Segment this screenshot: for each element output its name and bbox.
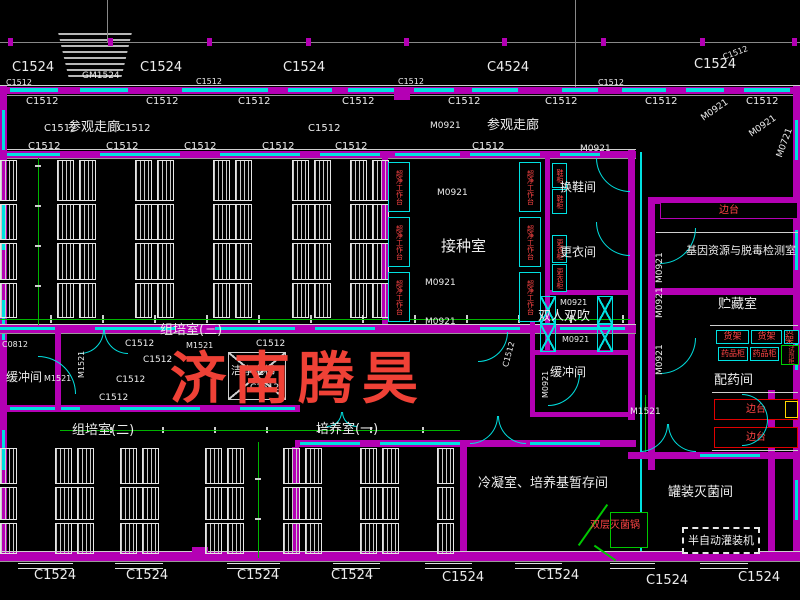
door-arc (596, 222, 630, 256)
air-shower-unit (597, 296, 613, 324)
room-label: 组培室(二) (72, 424, 134, 437)
shelf: 货架 (751, 330, 782, 344)
code-label: GM1524 (82, 72, 120, 81)
shoe-cabinet-label: 鞋柜 (556, 195, 563, 209)
rack-shelf-divider (205, 483, 244, 488)
window (530, 442, 600, 445)
rack-column (437, 448, 454, 554)
window (220, 153, 300, 156)
air-shower-unit (540, 324, 556, 352)
window-sill (515, 563, 562, 564)
rack-shelf-divider (350, 279, 389, 284)
rack-column (360, 448, 377, 554)
clean-bench: 超净工作台 (388, 272, 410, 322)
code-label: C1512 (146, 97, 178, 107)
door-jamb (394, 87, 410, 100)
window (480, 327, 520, 330)
room-label: 更衣间 (560, 246, 596, 258)
code-label: C1512 (26, 97, 58, 107)
window (470, 153, 540, 156)
window-sill (700, 568, 748, 569)
window (215, 327, 295, 330)
filling-machine: 半自动灌装机 (682, 527, 760, 554)
room-label: 基因资源与脱毒检测室 (686, 245, 796, 256)
equipment-label: 双层灭菌锅 (590, 521, 640, 531)
wall-edge (0, 158, 636, 159)
dim-tick (700, 38, 705, 46)
window-sill (227, 563, 280, 564)
code-label: C1512 (308, 124, 340, 134)
rack-shelf-divider (292, 200, 331, 205)
code-label: M0921 (560, 299, 587, 307)
code-label: C1524 (237, 569, 279, 582)
room-label: 参观走廊 (68, 121, 120, 134)
rack-shelf-divider (360, 483, 399, 488)
locker-label: 更衣柜 (556, 268, 563, 289)
rack-shelf-divider (292, 239, 331, 244)
window-sill (115, 563, 163, 564)
window (686, 88, 724, 92)
code-label: M0921 (562, 336, 589, 344)
window (300, 442, 360, 445)
code-label: C1524 (283, 61, 325, 74)
code-label: C1524 (34, 569, 76, 582)
dim-tick (601, 38, 606, 46)
rack-shelf-divider (213, 279, 252, 284)
code-label: M1521 (44, 375, 71, 383)
rack-shelf-divider (0, 239, 17, 244)
code-label: C1512 (448, 97, 480, 107)
code-label: M0921 (437, 189, 468, 198)
shelf-label: 货架 (757, 333, 775, 342)
room-label: 缓冲间 (550, 366, 586, 378)
code-label: M0921 (656, 344, 665, 375)
clean-bench-label: 超净工作台 (396, 280, 403, 315)
window-sill (700, 563, 748, 564)
side-bench-label: 边台 (719, 206, 739, 216)
dimension-line (0, 42, 800, 43)
window (414, 88, 454, 92)
window-sill (425, 563, 472, 564)
window (560, 327, 625, 330)
rack-shelf-divider (135, 239, 174, 244)
culture-rack (350, 160, 389, 318)
door-arc (596, 158, 630, 192)
culture-rack (360, 448, 399, 554)
rack-shelf-divider (0, 519, 17, 524)
code-label: M0921 (542, 371, 550, 398)
window (10, 88, 58, 92)
sink-box (785, 401, 798, 418)
rack-shelf-divider (437, 483, 454, 488)
code-label: C1512 (238, 97, 270, 107)
code-label: C1512 (99, 394, 128, 403)
window (795, 480, 798, 520)
door-arc (742, 394, 768, 420)
culture-rack (292, 160, 331, 318)
door-arc (660, 338, 696, 374)
window (182, 88, 268, 92)
window (380, 442, 460, 445)
room-label: 双人双吹 (538, 310, 590, 323)
dim-tick (792, 38, 797, 46)
rack-shelf-divider (292, 279, 331, 284)
code-label: C1512 (472, 142, 504, 152)
rack-shelf-divider (135, 200, 174, 205)
axis-line (107, 0, 108, 42)
code-label: C4524 (487, 61, 529, 74)
window (348, 88, 396, 92)
code-label: C1512 (125, 340, 154, 349)
door-arc (640, 424, 668, 452)
interior-wall (530, 412, 633, 417)
code-label: C1512 (28, 142, 60, 152)
rack-shelf-divider (55, 519, 94, 524)
window (2, 110, 5, 150)
wall-edge (0, 561, 800, 562)
code-label: C1524 (442, 571, 484, 584)
room-label: 培养室(一) (316, 423, 378, 436)
side-bench: 边台 (660, 202, 798, 219)
code-label: C1512 (335, 142, 367, 152)
code-label: M0921 (580, 145, 611, 154)
code-label: C1512 (342, 97, 374, 107)
window (472, 88, 518, 92)
dim-tick (108, 38, 113, 46)
rack-shelf-divider (57, 239, 96, 244)
code-label: C1512 (645, 97, 677, 107)
dim-ticks (255, 442, 261, 558)
code-label: M0921 (425, 279, 456, 288)
dim-tick (207, 38, 212, 46)
clean-bench: 超净工作台 (519, 162, 541, 212)
rack-shelf-divider (283, 483, 322, 488)
rack-shelf-divider (135, 279, 174, 284)
window (315, 327, 375, 330)
medicine-cabinet: 药品柜 (718, 347, 748, 361)
code-label: C1512 (196, 78, 222, 86)
rack-column (120, 448, 137, 554)
rack-shelf-divider (0, 279, 17, 284)
reagent-cabinet-label: 试剂柜 (787, 346, 793, 364)
window-sill (425, 568, 472, 569)
corridor-line (640, 152, 642, 554)
clean-bench-label: 超净工作台 (527, 280, 534, 315)
rack-shelf-divider (205, 519, 244, 524)
rack-shelf-divider (0, 200, 17, 205)
clean-bench: 超净工作台 (519, 217, 541, 267)
axis-line (575, 0, 576, 87)
dimension-line (712, 450, 798, 451)
window-sill (333, 563, 380, 564)
clean-bench-label: 超净工作台 (396, 170, 403, 205)
window (744, 88, 790, 92)
shelf-label: 货架 (723, 333, 741, 342)
culture-rack (57, 160, 96, 318)
code-label: C1524 (140, 61, 182, 74)
culture-rack (0, 160, 17, 318)
medicine-cabinet-label: 药品柜 (753, 350, 777, 358)
window (100, 153, 180, 156)
shelf: 货架 (716, 330, 749, 344)
code-label: C1512 (184, 142, 216, 152)
window (10, 407, 80, 410)
code-label: C1512 (118, 124, 150, 134)
window (0, 153, 60, 156)
culture-rack (213, 160, 252, 318)
rack-shelf-divider (120, 519, 159, 524)
culture-rack (135, 160, 174, 318)
code-label: C1524 (537, 569, 579, 582)
window (395, 153, 460, 156)
code-label: M0921 (656, 252, 665, 283)
rack-shelf-divider (283, 519, 322, 524)
dim-tick (306, 38, 311, 46)
room-label: 参观走廊 (487, 119, 539, 132)
room-label: 罐装灭菌间 (668, 486, 733, 499)
window (622, 88, 666, 92)
reagent-cabinet: 试剂柜 (781, 345, 799, 365)
clean-bench: 超净工作台 (388, 217, 410, 267)
dim-ticks (35, 158, 41, 325)
dim-tick (404, 38, 409, 46)
code-label: M1521 (78, 351, 86, 378)
shelf: 货架 (784, 330, 799, 344)
clean-bench-label: 超净工作台 (396, 225, 403, 260)
code-label: C1512 (598, 79, 624, 87)
window-sill (18, 563, 73, 564)
interior-wall (648, 288, 800, 295)
rack-shelf-divider (57, 279, 96, 284)
dimension-line (712, 392, 798, 393)
code-label: C1512 (398, 78, 424, 86)
code-label: C1524 (694, 58, 736, 71)
medicine-cabinet: 药品柜 (750, 347, 779, 361)
window-sill (610, 563, 655, 564)
interior-wall (0, 151, 636, 158)
code-label: M1521 (630, 408, 661, 417)
rack-shelf-divider (350, 239, 389, 244)
rack-shelf-divider (213, 239, 252, 244)
medicine-cabinet-label: 药品柜 (721, 350, 745, 358)
shelf-label: 货架 (785, 330, 798, 344)
code-label: C1512 (262, 142, 294, 152)
room-label: 配药间 (714, 374, 753, 387)
door-arc (668, 424, 696, 452)
rack-column (0, 448, 17, 554)
rack-column (305, 448, 322, 554)
locker: 更衣柜 (552, 264, 567, 292)
code-label: C1524 (646, 574, 688, 587)
clean-bench-label: 超净工作台 (527, 225, 534, 260)
code-label: C1524 (738, 571, 780, 584)
air-shower-unit (597, 324, 613, 352)
room-label: 贮藏室 (718, 298, 757, 311)
culture-rack (205, 448, 244, 554)
code-label: M0921 (748, 114, 778, 139)
culture-rack (55, 448, 94, 554)
rack-shelf-divider (57, 200, 96, 205)
window (320, 153, 380, 156)
window (562, 88, 598, 92)
code-label: C1524 (331, 569, 373, 582)
rack-shelf-divider (120, 483, 159, 488)
window (795, 120, 798, 160)
window (0, 327, 55, 330)
watermark-text: 济南腾昊 (170, 334, 426, 415)
rack-column (142, 448, 159, 554)
rack-shelf-divider (0, 483, 17, 488)
code-label: M0921 (430, 122, 461, 131)
code-label: C1512 (106, 142, 138, 152)
room-label: 缓冲间 (6, 371, 42, 383)
code-label: C1512 (116, 376, 145, 385)
code-label: C1524 (12, 61, 54, 74)
clean-bench: 超净工作台 (388, 162, 410, 212)
code-label: M0921 (656, 287, 665, 318)
rack-shelf-divider (213, 200, 252, 205)
rack-shelf-divider (350, 200, 389, 205)
interior-wall (460, 447, 467, 557)
dim-tick (8, 38, 13, 46)
code-label: M0921 (425, 318, 456, 327)
cad-floor-plan[interactable]: 济南腾昊 超净工作台超净工作台超净工作台超净工作台超净工作台超净工作台鞋柜鞋柜更… (0, 0, 800, 600)
code-label: C1512 (6, 79, 32, 87)
code-label: C1512 (746, 97, 778, 107)
window (700, 454, 760, 457)
code-label: C0812 (2, 341, 28, 349)
room-label: 冷凝室、培养基暂存间 (478, 477, 608, 490)
filling-machine-label: 半自动灌装机 (688, 535, 754, 546)
wall-edge (0, 149, 636, 150)
window (80, 88, 128, 92)
code-label: M0921 (700, 98, 730, 123)
code-label: C1524 (126, 569, 168, 582)
rack-column (382, 448, 399, 554)
rack-column (77, 448, 94, 554)
code-label: C1512 (545, 97, 577, 107)
window-sill (610, 568, 655, 569)
dimension-line (710, 325, 798, 326)
culture-rack (283, 448, 322, 554)
culture-rack (0, 448, 17, 554)
dim-tick (502, 38, 507, 46)
room-label: 接种室 (441, 239, 486, 254)
rack-shelf-divider (55, 483, 94, 488)
window (288, 88, 332, 92)
rack-column (205, 448, 222, 554)
rack-shelf-divider (360, 519, 399, 524)
code-label: C1512 (143, 356, 172, 365)
rack-shelf-divider (437, 519, 454, 524)
room-label: 换鞋间 (560, 181, 596, 193)
culture-rack (120, 448, 159, 554)
clean-bench-label: 超净工作台 (527, 170, 534, 205)
rack-column (227, 448, 244, 554)
rack-column (283, 448, 300, 554)
culture-rack (437, 448, 454, 554)
rack-column (55, 448, 72, 554)
